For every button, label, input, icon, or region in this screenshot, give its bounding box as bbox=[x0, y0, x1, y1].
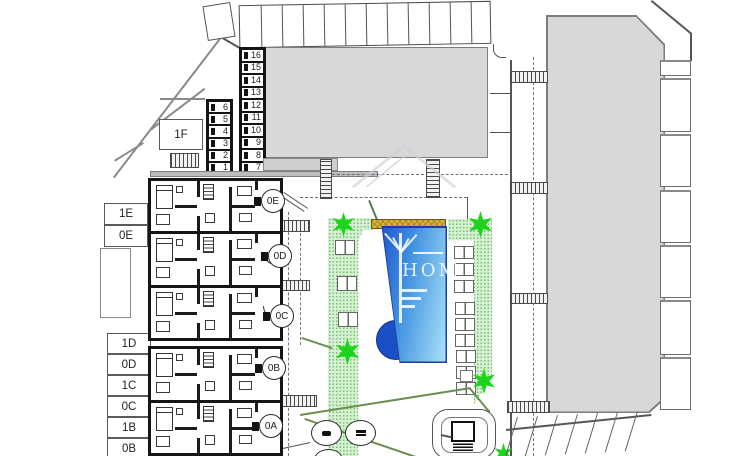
signage-oval bbox=[311, 420, 342, 446]
unit-label: 1B bbox=[107, 417, 151, 438]
unit-circle-0e: 0E bbox=[261, 189, 285, 213]
furniture bbox=[205, 320, 215, 330]
unit-labels-upper: 1E0E bbox=[104, 203, 148, 247]
sun-lounger bbox=[455, 318, 475, 331]
storage-cell: 6 bbox=[209, 102, 230, 112]
furniture bbox=[176, 239, 183, 246]
interior-wall bbox=[229, 258, 255, 261]
furniture bbox=[156, 321, 170, 332]
pool-equipment-device bbox=[451, 421, 475, 442]
apartment-unit-0c bbox=[151, 285, 280, 338]
interior-wall bbox=[175, 205, 197, 208]
boundary-line bbox=[651, 0, 692, 34]
furniture bbox=[203, 184, 214, 200]
pool-equipment-hatch bbox=[453, 443, 473, 451]
storage-cell: 4 bbox=[209, 124, 230, 136]
stairs bbox=[510, 293, 548, 304]
interior-wall bbox=[229, 187, 232, 232]
garden-box bbox=[100, 248, 131, 318]
furniture bbox=[239, 213, 252, 222]
unit-circle-0c: 0C bbox=[270, 304, 294, 328]
parking-row-top bbox=[239, 1, 492, 48]
unit-labels-lower: 1D0D1C0C1B0B bbox=[107, 333, 151, 456]
signage-glyph bbox=[322, 431, 331, 436]
furniture bbox=[237, 293, 252, 303]
walkway-tick bbox=[490, 93, 511, 94]
unit-circle-0b: 0B bbox=[262, 356, 286, 380]
boundary-line bbox=[160, 98, 205, 100]
stairs bbox=[510, 71, 548, 83]
sun-lounger bbox=[456, 350, 476, 363]
stair-tower bbox=[320, 159, 332, 199]
terrace-box bbox=[660, 60, 691, 76]
sun-lounger bbox=[454, 280, 474, 293]
furniture bbox=[176, 186, 183, 193]
terrace-box bbox=[660, 190, 691, 243]
interior-wall bbox=[197, 438, 200, 454]
furniture bbox=[237, 239, 252, 249]
building-a bbox=[263, 47, 488, 158]
signage-oval bbox=[345, 420, 376, 446]
storage-cell: 2 bbox=[209, 149, 230, 161]
walkway-tick bbox=[490, 132, 511, 133]
interior-wall bbox=[175, 312, 197, 315]
unit-label: 0C bbox=[107, 396, 151, 417]
storage-cell: 9 bbox=[242, 136, 263, 149]
terrace-box bbox=[660, 78, 691, 132]
interior-wall bbox=[229, 205, 255, 208]
sun-lounger bbox=[338, 312, 358, 327]
apartment-unit-0b bbox=[151, 349, 280, 400]
storage-cell: 8 bbox=[242, 148, 263, 161]
interior-wall bbox=[197, 216, 200, 232]
parking-divider bbox=[525, 416, 539, 456]
furniture bbox=[237, 186, 252, 196]
site-plan: 16151413121110987 654321 1F 1E0E 1D0D1C0… bbox=[0, 0, 756, 456]
storage-cell: 13 bbox=[242, 86, 263, 99]
unit-label: 1E bbox=[104, 203, 148, 225]
interior-wall bbox=[175, 427, 197, 430]
interior-wall bbox=[255, 288, 258, 297]
interior-wall bbox=[229, 409, 232, 454]
furniture bbox=[205, 381, 215, 391]
building-a-bracket bbox=[493, 44, 506, 58]
interior-wall bbox=[197, 403, 200, 419]
stairs bbox=[170, 153, 199, 168]
furniture bbox=[239, 320, 252, 329]
walkway-dashed-line bbox=[533, 57, 534, 456]
utility-box bbox=[460, 370, 473, 382]
sun-lounger bbox=[337, 276, 357, 291]
furniture bbox=[156, 185, 173, 209]
terrace-box bbox=[660, 300, 691, 355]
terrace-box bbox=[660, 357, 691, 410]
watermark-bar bbox=[401, 289, 427, 292]
terrace-box bbox=[660, 245, 691, 298]
furniture bbox=[239, 266, 252, 275]
interior-wall bbox=[197, 288, 200, 304]
unit-label: 1C bbox=[107, 375, 151, 396]
storage-cell: 3 bbox=[209, 137, 230, 149]
interior-wall bbox=[197, 181, 200, 197]
furniture bbox=[237, 408, 252, 418]
stairs bbox=[510, 182, 548, 194]
furniture bbox=[176, 408, 183, 415]
interior-wall bbox=[229, 355, 232, 400]
furniture bbox=[156, 267, 170, 278]
stairs bbox=[507, 401, 550, 413]
storage-cell: 12 bbox=[242, 98, 263, 111]
interior-wall bbox=[197, 384, 200, 400]
sun-lounger bbox=[335, 240, 355, 255]
interior-wall bbox=[255, 403, 258, 412]
unit-circle-0a: 0A bbox=[259, 414, 283, 438]
storage-cell: 10 bbox=[242, 123, 263, 136]
sun-lounger bbox=[455, 302, 475, 315]
furniture bbox=[156, 214, 170, 225]
furniture bbox=[156, 407, 173, 431]
interior-wall bbox=[255, 234, 258, 243]
walkway-line bbox=[510, 60, 512, 456]
furniture bbox=[203, 406, 214, 422]
furniture bbox=[156, 382, 170, 393]
furniture bbox=[203, 352, 214, 368]
parking-divider bbox=[545, 415, 559, 456]
furniture bbox=[237, 354, 252, 364]
interior-wall bbox=[229, 240, 232, 285]
furniture bbox=[205, 266, 215, 276]
furniture bbox=[239, 381, 252, 390]
sun-lounger bbox=[454, 246, 474, 259]
storage-column-left: 654321 bbox=[206, 99, 233, 176]
interior-wall bbox=[229, 373, 255, 376]
parking-divider bbox=[505, 417, 519, 456]
furniture bbox=[156, 353, 173, 377]
storage-cell: 5 bbox=[209, 112, 230, 124]
interior-wall bbox=[229, 312, 255, 315]
apartment-unit-0e bbox=[151, 181, 280, 231]
annex-label-1f: 1F bbox=[159, 119, 203, 150]
terrace-box bbox=[660, 134, 691, 187]
furniture bbox=[205, 213, 215, 223]
furniture bbox=[203, 237, 214, 253]
parking-divider bbox=[565, 414, 579, 455]
furniture bbox=[156, 436, 170, 447]
watermark-bar bbox=[401, 305, 415, 308]
watermark-bar bbox=[401, 297, 421, 300]
boundary-line bbox=[690, 33, 692, 61]
furniture bbox=[176, 293, 183, 300]
parking-box bbox=[202, 2, 235, 41]
storage-cell: 16 bbox=[242, 50, 263, 61]
storage-cell: 14 bbox=[242, 73, 263, 86]
watermark-bar bbox=[413, 252, 443, 254]
interior-wall bbox=[229, 294, 232, 339]
interior-wall bbox=[197, 323, 200, 339]
unit-label: 1D bbox=[107, 333, 151, 354]
interior-wall bbox=[197, 269, 200, 285]
storage-cell: 11 bbox=[242, 111, 263, 124]
furniture bbox=[156, 292, 173, 316]
watermark-text: HOM bbox=[402, 260, 460, 281]
interior-wall bbox=[197, 349, 200, 365]
interior-wall bbox=[175, 258, 197, 261]
building-b bbox=[548, 17, 664, 412]
interior-wall bbox=[255, 181, 258, 190]
unit-circle-0d: 0D bbox=[268, 244, 292, 268]
path-line bbox=[302, 337, 333, 349]
interior-wall bbox=[197, 234, 200, 250]
interior-wall bbox=[255, 349, 258, 358]
furniture bbox=[156, 238, 173, 262]
furniture bbox=[239, 435, 252, 444]
signage-glyph bbox=[356, 430, 366, 436]
unit-label: 0D bbox=[107, 354, 151, 375]
furniture bbox=[176, 354, 183, 361]
parking-row-bottom-edge bbox=[506, 414, 651, 430]
storage-cell: 15 bbox=[242, 61, 263, 74]
unit-label: 0B bbox=[107, 438, 151, 456]
storage-column-right: 16151413121110987 bbox=[239, 47, 266, 176]
unit-label: 0E bbox=[104, 225, 148, 247]
walk-dashed-line bbox=[322, 174, 508, 175]
sun-lounger bbox=[455, 334, 475, 347]
furniture bbox=[203, 291, 214, 307]
interior-wall bbox=[175, 373, 197, 376]
furniture bbox=[205, 435, 215, 445]
